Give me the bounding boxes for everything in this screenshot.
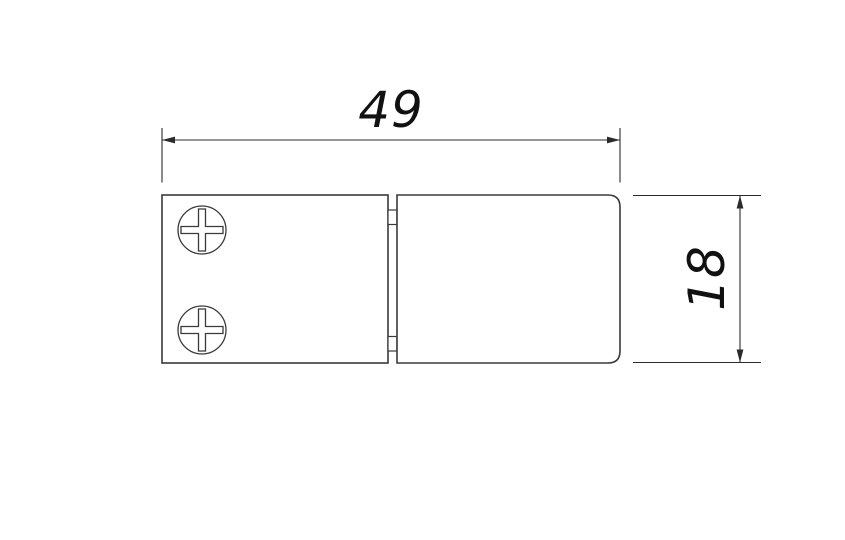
drawing-canvas: 49 18 [0,0,845,540]
arrowhead-down-icon [737,350,744,363]
dimension-width: 49 [162,81,620,183]
phillips-screw-top [178,206,226,254]
connector-tab-bottom [388,337,397,352]
arrowhead-up-icon [737,196,744,209]
dimension-height: 18 [633,196,761,363]
arrowhead-right-icon [607,137,620,144]
dimension-height-value: 18 [678,245,736,311]
technical-drawing: 49 18 [0,0,845,540]
part-views [162,195,620,363]
phillips-screw-bottom [178,306,226,354]
arrowhead-left-icon [162,137,175,144]
dimension-width-value: 49 [358,81,424,139]
part-right-body [397,195,620,363]
connector-tab-top [388,210,397,225]
